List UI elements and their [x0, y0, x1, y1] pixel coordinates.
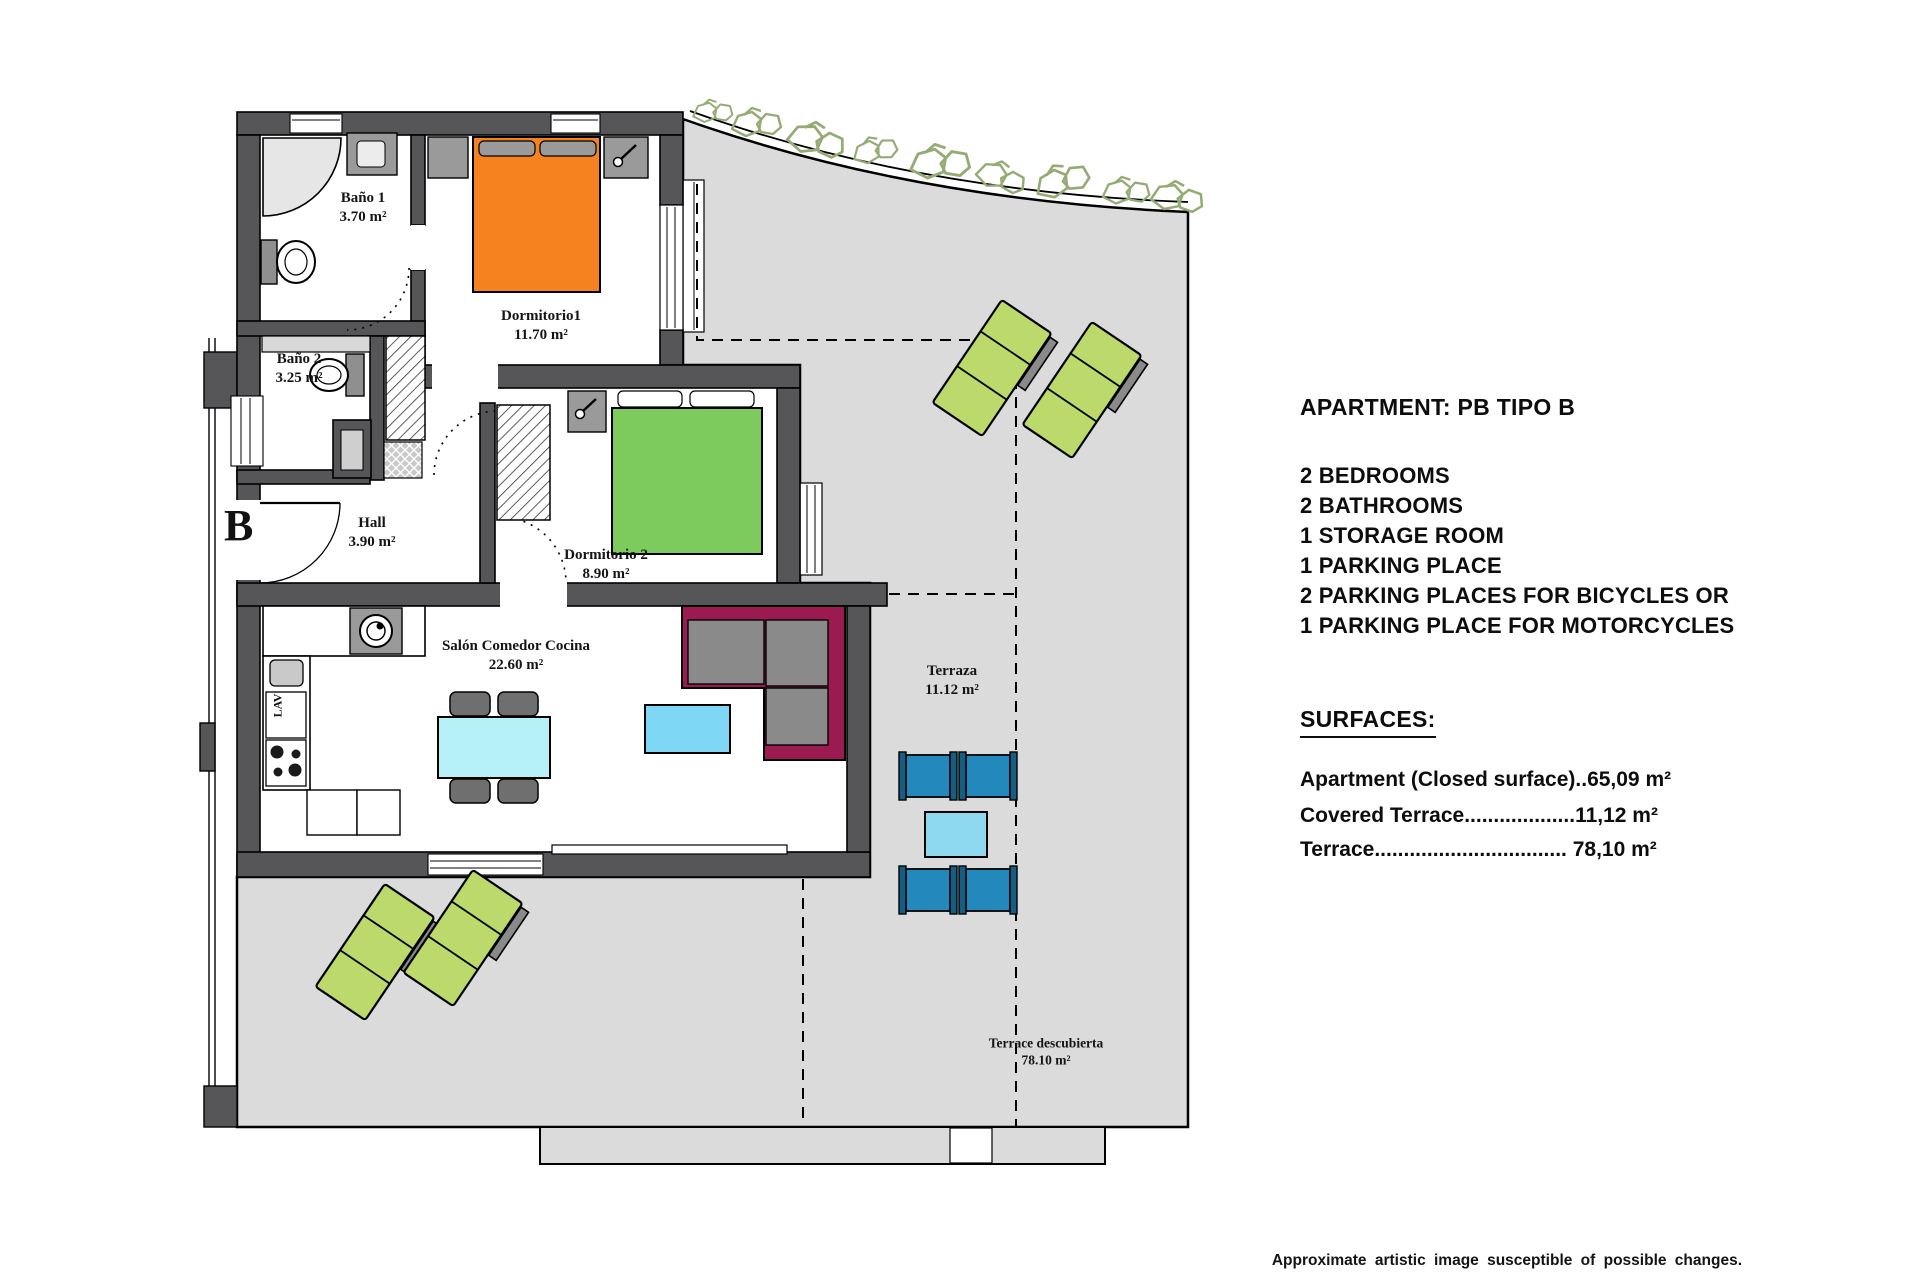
room-area: 8.90 m²	[564, 565, 648, 584]
surfaces-heading: SURFACES:	[1300, 706, 1436, 738]
surface-dots: ..	[1575, 768, 1587, 791]
floor-plan-page: Baño 1 3.70 m² Baño 2 3.25 m² Hall 3.90 …	[0, 0, 1920, 1280]
surface-value: 65,09 m²	[1587, 768, 1671, 791]
room-name: Dormitorio 2	[564, 546, 648, 565]
nightstand	[568, 391, 606, 432]
room-area: 11.12 m²	[925, 681, 979, 700]
room-area: 22.60 m²	[442, 656, 590, 675]
feature-item: 2 PARKING PLACES FOR BICYCLES OR	[1300, 581, 1734, 611]
chair	[498, 779, 538, 803]
surface-value: 78,10 m²	[1567, 838, 1657, 861]
room-name: Dormitorio1	[501, 307, 581, 326]
pillow	[618, 391, 682, 407]
room-area: 11.70 m²	[501, 326, 581, 345]
nightstand	[604, 137, 648, 178]
room-label-salon: Salón Comedor Cocina 22.60 m²	[442, 637, 590, 675]
chair	[498, 692, 538, 716]
coffee-table	[645, 705, 730, 753]
surface-label: Covered Terrace	[1300, 804, 1464, 827]
room-area: 3.25 m²	[276, 369, 323, 388]
room-name: Salón Comedor Cocina	[442, 637, 590, 656]
dining-table	[438, 717, 550, 778]
cabinet	[357, 790, 400, 835]
lav-label: LAV	[270, 694, 285, 718]
cabinet	[307, 790, 357, 835]
surface-dots: ...................	[1464, 804, 1575, 827]
pillow	[540, 141, 596, 156]
apartment-title: APARTMENT: PB TIPO B	[1300, 394, 1575, 421]
kitchen-sink	[270, 660, 303, 686]
toilet1-tank	[261, 240, 277, 284]
room-area: 78.10 m²	[989, 1052, 1104, 1069]
surface-label: Apartment (Closed surface)	[1300, 768, 1575, 791]
surface-dots: .................................	[1374, 838, 1567, 861]
surface-label: Terrace	[1300, 838, 1374, 861]
feature-item: 1 STORAGE ROOM	[1300, 521, 1734, 551]
feature-item: 1 PARKING PLACE	[1300, 551, 1734, 581]
pillow	[479, 141, 535, 156]
room-name: Hall	[349, 514, 396, 533]
room-label-bano1: Baño 1 3.70 m²	[340, 189, 387, 227]
surface-row-terrace: Terrace.................................…	[1300, 838, 1657, 862]
room-name: Baño 2	[276, 350, 323, 369]
feature-item: 1 PARKING PLACE FOR MOTORCYCLES	[1300, 611, 1734, 641]
storage-room	[341, 430, 363, 470]
disclaimer-text: Approximate artistic image susceptible o…	[1230, 1252, 1742, 1270]
room-area: 3.90 m²	[349, 533, 396, 552]
feature-item: 2 BATHROOMS	[1300, 491, 1734, 521]
terrace-table	[925, 812, 987, 857]
block-letter: B	[224, 504, 253, 548]
feature-list: 2 BEDROOMS 2 BATHROOMS 1 STORAGE ROOM 1 …	[1300, 461, 1734, 641]
room-label-dormitorio2: Dormitorio 2 8.90 m²	[564, 546, 648, 584]
room-label-terraza: Terraza 11.12 m²	[925, 662, 979, 700]
bed-green	[612, 408, 762, 554]
chair	[450, 692, 490, 716]
room-name: Baño 1	[340, 189, 387, 208]
room-label-bano2: Baño 2 3.25 m²	[276, 350, 323, 388]
pillow	[690, 391, 754, 407]
toilet1-bowl	[277, 241, 315, 283]
surface-row-apartment: Apartment (Closed surface)..65,09 m²	[1300, 768, 1671, 792]
surface-row-covered-terrace: Covered Terrace...................11,12 …	[1300, 804, 1658, 828]
chair	[450, 779, 490, 803]
room-label-terrace-descubierta: Terrace descubierta 78.10 m²	[989, 1035, 1104, 1070]
room-name: Terrace descubierta	[989, 1035, 1104, 1052]
room-label-hall: Hall 3.90 m²	[349, 514, 396, 552]
room-label-dormitorio1: Dormitorio1 11.70 m²	[501, 307, 581, 345]
room-name: Terraza	[925, 662, 979, 681]
room-area: 3.70 m²	[340, 208, 387, 227]
feature-item: 2 BEDROOMS	[1300, 461, 1734, 491]
stove	[266, 740, 306, 786]
nightstand	[428, 137, 468, 178]
surface-value: 11,12 m²	[1575, 804, 1658, 827]
bed-orange	[473, 137, 600, 292]
